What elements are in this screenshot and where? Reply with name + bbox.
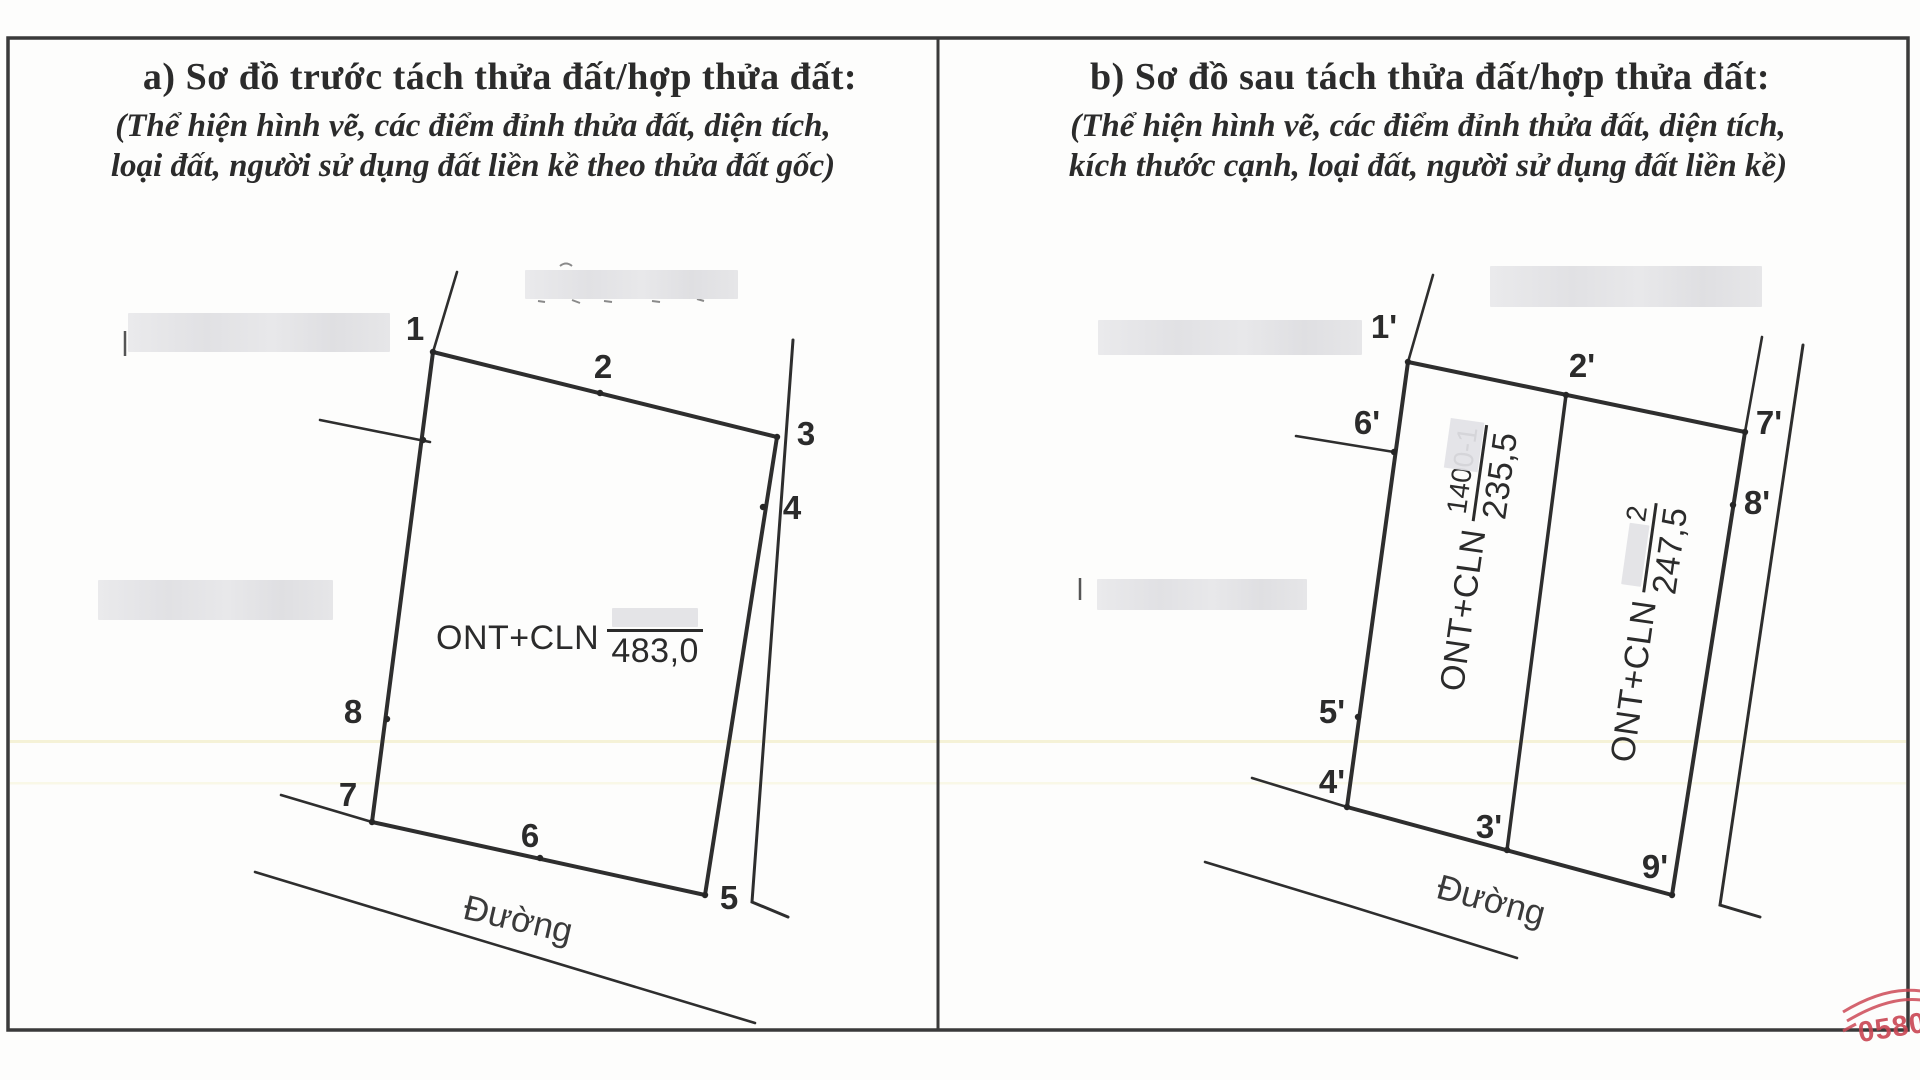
panel-a-title: a) Sơ đồ trước tách thửa đất/hợp thửa đấ… bbox=[60, 55, 940, 99]
land-use-code: ONT+CLN bbox=[1433, 527, 1494, 694]
redacted-parcel-number bbox=[607, 608, 703, 632]
vertex-label: 2' bbox=[1569, 347, 1595, 385]
redacted-owner-name bbox=[525, 270, 738, 299]
land-use-code: ONT+CLN bbox=[436, 619, 599, 658]
vertex-label: 1 bbox=[406, 310, 424, 348]
vertex-label: 4 bbox=[783, 489, 801, 527]
vertex-label: 5' bbox=[1319, 693, 1345, 731]
vertex-label: 8 bbox=[344, 693, 362, 731]
redacted-neighbor-name bbox=[1098, 320, 1362, 355]
parcel-b-vertex-dots bbox=[1344, 359, 1748, 898]
vertex-label: 3' bbox=[1476, 808, 1502, 846]
panel-b-subtitle-line2: kích thước cạnh, loại đất, người sử dụng… bbox=[958, 146, 1898, 186]
vertex-dot bbox=[1730, 502, 1736, 508]
vertex-label: 7 bbox=[339, 776, 357, 814]
vertex-dot bbox=[1391, 449, 1397, 455]
partial-redaction bbox=[1444, 418, 1485, 473]
parcel-a-right-edge bbox=[705, 437, 777, 895]
panel-b-subtitle-line1: (Thể hiện hình vẽ, các điểm đỉnh thửa đấ… bbox=[958, 106, 1898, 146]
vertex-label: 7' bbox=[1756, 404, 1782, 442]
panel-a-subtitle-line2: loại đất, người sử dụng đất liền kề theo… bbox=[28, 146, 918, 186]
vertex-dot bbox=[430, 349, 436, 355]
neighbor-boundary-tick bbox=[320, 420, 430, 442]
vertex-label: 8' bbox=[1744, 484, 1770, 522]
vertex-dot bbox=[1742, 429, 1748, 435]
vertex-dot bbox=[1504, 847, 1510, 853]
redacted-neighbor-name bbox=[128, 313, 390, 352]
parcel-fraction: 483,0 bbox=[607, 608, 703, 668]
vertex-dot bbox=[702, 892, 708, 898]
vertex-label: 4' bbox=[1319, 763, 1345, 801]
vertex-label: 1' bbox=[1371, 308, 1397, 346]
panel-a-subtitle-line1: (Thể hiện hình vẽ, các điểm đỉnh thửa đấ… bbox=[28, 106, 918, 146]
adjacent-boundary-line-a bbox=[752, 340, 793, 917]
road-lower-edge-a bbox=[255, 872, 755, 1023]
scan-streak bbox=[10, 782, 1906, 785]
vertex-dot bbox=[597, 390, 603, 396]
boundary-extension-line bbox=[1408, 275, 1433, 362]
vertex-label: 2 bbox=[594, 348, 612, 386]
parcel-fraction: 2 247,5 bbox=[1613, 499, 1694, 597]
vertex-dot bbox=[1344, 804, 1350, 810]
parcel-number-text: 2 bbox=[1622, 504, 1652, 523]
scanned-cadastral-document: a) Sơ đồ trước tách thửa đất/hợp thửa đấ… bbox=[0, 0, 1920, 1080]
vertex-dot bbox=[384, 716, 390, 722]
panel-b-title: b) Sơ đồ sau tách thửa đất/hợp thửa đất: bbox=[955, 55, 1905, 99]
parcel-b-right-edge bbox=[1672, 432, 1745, 895]
vertex-label: 5 bbox=[720, 879, 738, 917]
vertex-dot bbox=[1669, 892, 1675, 898]
vertex-dot bbox=[774, 434, 780, 440]
vertex-label: 6' bbox=[1354, 404, 1380, 442]
parcel-area: 483,0 bbox=[611, 634, 699, 668]
parcel-a-left-edge bbox=[372, 352, 433, 822]
vertex-label: 6 bbox=[521, 817, 539, 855]
land-use-code: ONT+CLN bbox=[1604, 598, 1665, 765]
panel-b-subtitle: (Thể hiện hình vẽ, các điểm đỉnh thửa đấ… bbox=[958, 106, 1898, 186]
vertex-dot bbox=[1563, 392, 1569, 398]
redaction-block bbox=[1621, 523, 1649, 587]
vertex-label: 3 bbox=[797, 415, 815, 453]
road-upper-edge-a bbox=[281, 795, 372, 822]
parcel-a-label: ONT+CLN 483,0 bbox=[436, 608, 703, 668]
panel-a-subtitle: (Thể hiện hình vẽ, các điểm đỉnh thửa đấ… bbox=[28, 106, 918, 186]
vertex-dot bbox=[1355, 714, 1361, 720]
vertex-dot bbox=[1405, 359, 1411, 365]
redacted-owner-name bbox=[1490, 266, 1762, 307]
redacted-neighbor-name bbox=[98, 580, 333, 620]
vertex-dot bbox=[537, 855, 543, 861]
parcel-fraction: 1400-1 235,5 bbox=[1442, 420, 1524, 526]
boundary-extension-line bbox=[433, 272, 457, 352]
vertex-dot bbox=[760, 504, 766, 510]
parcel-b-outline bbox=[1205, 275, 1803, 958]
vertex-dot bbox=[420, 437, 426, 443]
vertex-dot bbox=[369, 819, 375, 825]
redacted-neighbor-name bbox=[1097, 579, 1307, 610]
vertex-label: 9' bbox=[1642, 848, 1668, 886]
